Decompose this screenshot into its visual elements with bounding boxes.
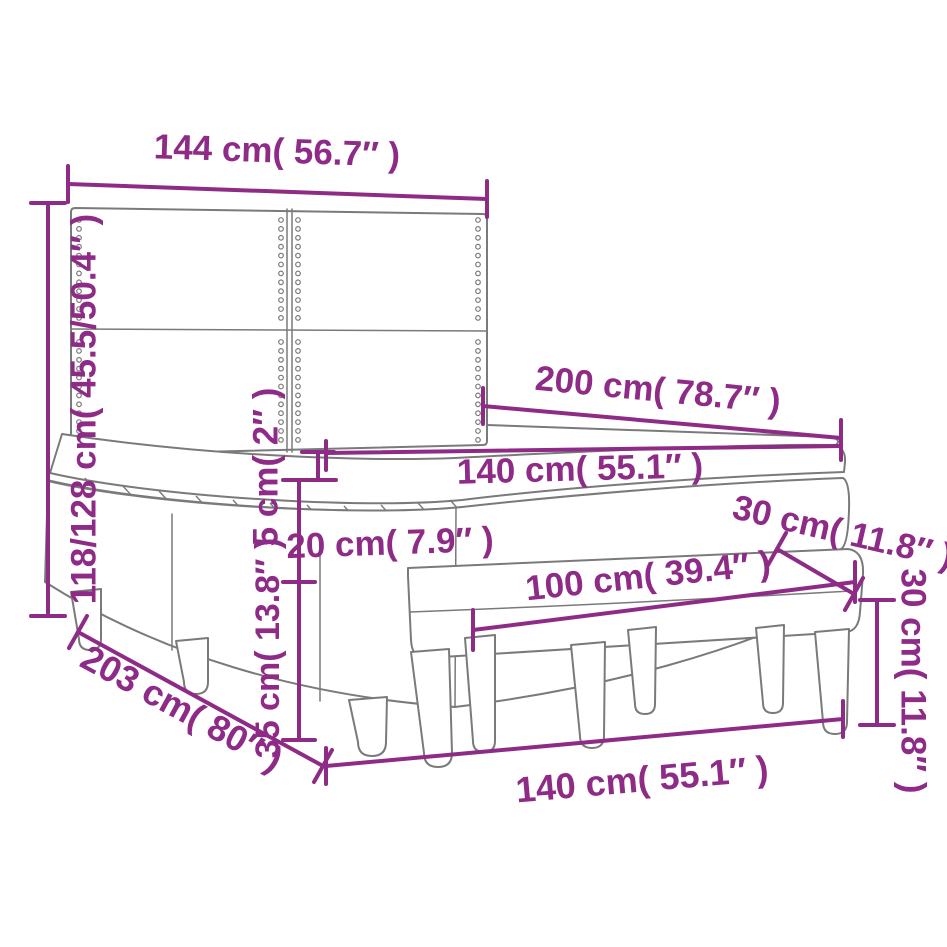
dim-label-mattress-height: 20 cm( 7.9″ )	[286, 520, 495, 566]
dim-label-headboard-width: 144 cm( 56.7″ )	[153, 127, 401, 175]
furniture-leg	[349, 697, 387, 756]
furniture-leg	[756, 625, 784, 713]
dim-label-bed-height: 118/128 cm( 45.5/50.4″ )	[65, 214, 104, 604]
furniture-leg	[628, 627, 656, 714]
dim-label-bed-width-floor: 140 cm( 55.1″ )	[514, 748, 770, 811]
dim-line	[483, 406, 841, 438]
dim-label-topper-height: 5 cm( 2″ )	[247, 388, 286, 547]
furniture-leg	[411, 649, 452, 767]
dim-bed-height: 118/128 cm( 45.5/50.4″ )	[31, 203, 104, 616]
dim-label-mattress-width: 140 cm( 55.1″ )	[456, 446, 703, 491]
dim-bed-length: 200 cm( 78.7″ )	[483, 359, 841, 456]
furniture-leg	[571, 642, 605, 748]
furniture-leg	[465, 635, 495, 752]
bed-diagram-canvas: 144 cm( 56.7″ ) 118/128 cm( 45.5/50.4″ )…	[0, 0, 947, 947]
dim-line	[68, 184, 487, 199]
dim-bench-height: 30 cm( 11.8″ )	[860, 569, 933, 794]
dim-label-bench-height: 30 cm( 11.8″ )	[894, 569, 933, 794]
dim-headboard-width: 144 cm( 56.7″ )	[68, 127, 487, 217]
bench-legs	[411, 625, 849, 767]
dimension-diagram: 144 cm( 56.7″ ) 118/128 cm( 45.5/50.4″ )…	[0, 0, 947, 947]
